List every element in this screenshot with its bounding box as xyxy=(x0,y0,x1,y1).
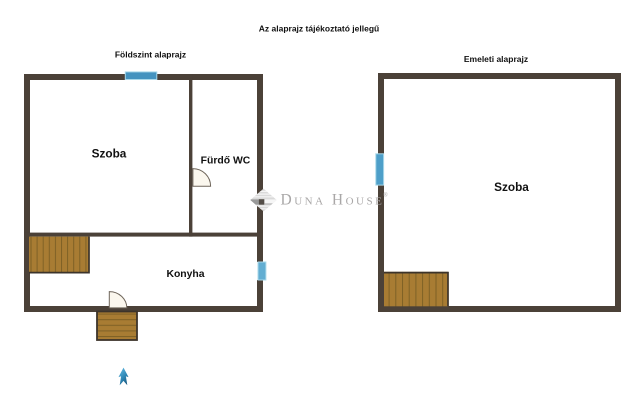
svg-text:®: ® xyxy=(383,192,388,199)
svg-text:Szoba: Szoba xyxy=(494,180,529,194)
svg-text:Konyha: Konyha xyxy=(166,269,204,280)
svg-text:Fürdő WC: Fürdő WC xyxy=(201,156,251,167)
svg-text:Emeleti alaprajz: Emeleti alaprajz xyxy=(464,54,528,64)
svg-text:Szoba: Szoba xyxy=(92,146,127,160)
svg-text:Földszint alaprajz: Földszint alaprajz xyxy=(115,49,186,59)
svg-text:Az alaprajz tájékoztató jelleg: Az alaprajz tájékoztató jellegű xyxy=(259,24,379,34)
svg-text:Duna House: Duna House xyxy=(281,192,385,209)
